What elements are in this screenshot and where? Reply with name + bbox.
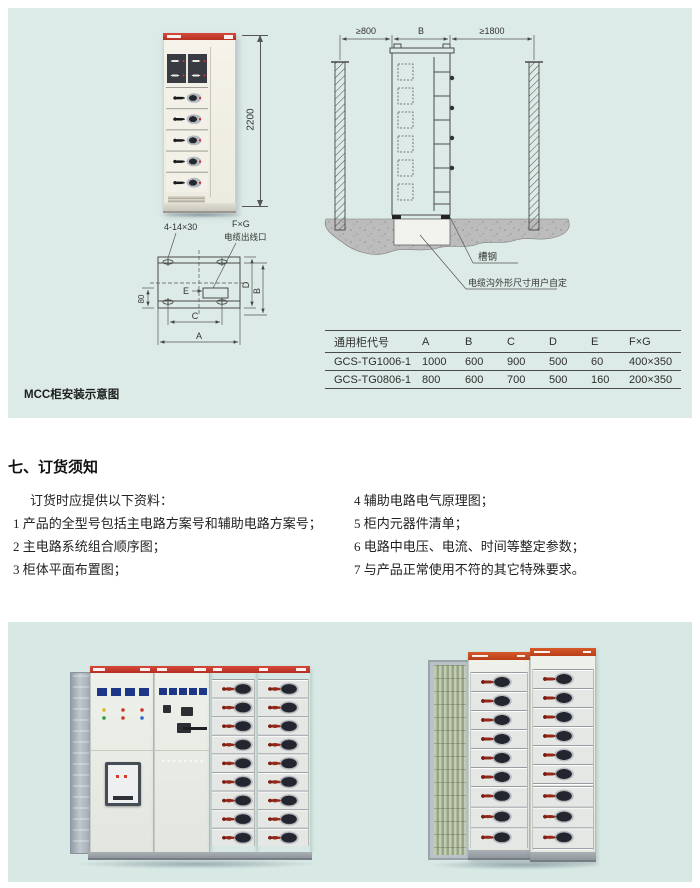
brand-mark (213, 668, 222, 671)
meter-cluster (97, 688, 149, 696)
drawer-cabinet (468, 652, 530, 860)
ordering-item: 5 柜内元器件清单； (354, 512, 692, 535)
installation-diagram-panel: 2200 (8, 8, 692, 418)
plinth (468, 850, 530, 860)
ordering-list-right: 4 辅助电路电气原理图； 5 柜内元器件清单； 6 电路中电压、电流、时间等整定… (354, 489, 692, 581)
dim-80-label: 80 (137, 294, 146, 303)
walls (331, 62, 543, 230)
table-row: GCS-TG0806-1 800 600 700 500 160 200×350 (325, 371, 681, 389)
cabinet-body (163, 40, 236, 205)
ordering-item: 2 主电路系统组合顺序图； (13, 535, 351, 558)
cabinet-top-band (90, 666, 154, 673)
table-header-cell: F×G (627, 331, 681, 353)
table-cell: 500 (547, 371, 589, 389)
frame-slats (73, 675, 89, 851)
metering-cabinet (90, 666, 154, 852)
ordering-item: 1 产品的全型号包括主电路方案号和辅助电路方案号； (13, 512, 351, 535)
table-cell: GCS-TG1006-1 (325, 353, 420, 371)
catalog-page: 2200 (0, 0, 700, 888)
open-frame-side (428, 660, 472, 860)
cabinet-front-photo (163, 33, 236, 213)
indicator-lights (99, 706, 147, 722)
cabinet-top-band (210, 666, 256, 673)
cabinet-face (154, 673, 210, 852)
ordering-item: 6 电路中电压、电流、时间等整定参数； (354, 535, 692, 558)
cabinet-top-band (154, 666, 210, 673)
drawer-stack (166, 87, 208, 193)
arrow-up-icon (257, 35, 263, 42)
table-cell: 900 (505, 353, 547, 371)
display-screen (108, 765, 138, 803)
cabinet-top-band (468, 652, 530, 660)
table-header-cell: D (547, 331, 589, 353)
section-view-drawing: ≥800 B ≥1800 槽钢 电缆沟外形尺寸用户自定 (320, 22, 575, 314)
table-header-cell: 通用柜代号 (325, 331, 420, 353)
channel-steel-feet (392, 215, 450, 219)
model-mark (517, 655, 525, 658)
cable-outlet-rect (203, 288, 228, 298)
height-dim-label: 2200 (246, 103, 257, 137)
table-cell: 600 (463, 371, 505, 389)
photo-shadow (72, 859, 320, 869)
cabinet-top-band (163, 33, 236, 40)
right-clearance-label: ≥1800 (480, 26, 505, 36)
drawer-stack-upper (532, 669, 594, 786)
table-header-cell: C (505, 331, 547, 353)
cabinet-top-band (530, 648, 596, 656)
table-cell: 500 (547, 353, 589, 371)
brand-mark (167, 35, 181, 38)
section-heading: 七、订货须知 (8, 456, 98, 477)
dim-c-label: C (192, 311, 199, 321)
height-dim-line (260, 35, 261, 207)
drawer-stack-upper (470, 672, 528, 786)
drawer-stack-lower (470, 786, 528, 848)
dimension-table: 通用柜代号 A B C D E F×G GCS-TG1006-1 1000 60… (325, 330, 681, 389)
brand-mark (157, 668, 167, 671)
button-row (161, 759, 205, 763)
control-cabinet (154, 666, 210, 852)
cable-outlet-label: 电缆出线口 (224, 232, 267, 242)
ordering-item: 7 与产品正常使用不符的其它特殊要求。 (354, 558, 692, 581)
dim-ext-top (242, 35, 268, 36)
channel-steel-label: 槽钢 (478, 251, 497, 263)
switch-handle (183, 727, 207, 730)
drawer-stack-lower (532, 786, 594, 850)
model-mark (224, 35, 233, 39)
drawer-stack (257, 679, 309, 846)
table-cell: 700 (505, 371, 547, 389)
brand-mark (534, 651, 550, 654)
table-header-row: 通用柜代号 A B C D E F×G (325, 331, 681, 353)
dim-d-label: D (241, 281, 251, 288)
dim-a-label: A (196, 331, 202, 341)
table-cell: 160 (589, 371, 627, 389)
table-header-cell: E (589, 331, 627, 353)
side-frame (70, 672, 92, 854)
dim-b-label: B (252, 288, 262, 294)
table-cell: GCS-TG0806-1 (325, 371, 420, 389)
product-photos-panel (8, 622, 692, 882)
dim-e-label: E (183, 286, 189, 296)
outlet-size-label: F×G (232, 219, 250, 229)
cabinet-width-label: B (418, 26, 424, 36)
display-panel (105, 762, 141, 806)
left-clearance-label: ≥800 (356, 26, 376, 36)
table-header-cell: A (420, 331, 463, 353)
door-seam (155, 750, 209, 751)
photo-shadow (428, 860, 604, 870)
brand-mark (259, 668, 268, 671)
meter-cluster (159, 688, 207, 695)
frame-rails (434, 665, 466, 855)
cabinet-top-band (256, 666, 310, 673)
brand-mark (472, 655, 488, 658)
cabinet-section (390, 44, 454, 215)
mounting-slots (163, 258, 227, 306)
drawer-cabinet (530, 648, 596, 862)
model-mark (583, 651, 591, 654)
meter-small (181, 707, 193, 716)
drawer-cabinet (256, 666, 310, 852)
switchgear-lineup-photo (70, 662, 320, 870)
table-cell: 800 (420, 371, 463, 389)
drawer-stack (211, 679, 255, 846)
table-row: GCS-TG1006-1 1000 600 900 500 60 400×350 (325, 353, 681, 371)
door-divider (210, 47, 211, 197)
drawer-cabinets-photo (428, 648, 608, 868)
plan-view-drawing: 4-14×30 F×G 电缆出线口 E D B 80 C A (120, 218, 300, 366)
selector-switch (163, 705, 171, 713)
trench-label: 电缆沟外形尺寸用户自定 (468, 277, 567, 288)
drawer-outlines (398, 64, 413, 200)
holes-label: 4-14×30 (164, 222, 197, 232)
table-cell: 1000 (420, 353, 463, 371)
table-cell: 600 (463, 353, 505, 371)
table-cell: 60 (589, 353, 627, 371)
drawer-cabinet (210, 666, 256, 852)
dim-ext-bottom (242, 206, 268, 207)
diagram-caption: MCC柜安装示意图 (24, 386, 119, 402)
model-mark (296, 668, 306, 671)
ordering-intro: 订货时应提供以下资料： (13, 489, 351, 512)
table-cell: 200×350 (627, 371, 681, 389)
table-header-cell: B (463, 331, 505, 353)
ordering-item: 3 柜体平面布置图； (13, 558, 351, 581)
door-seam (91, 750, 153, 751)
ordering-list-left: 订货时应提供以下资料： 1 产品的全型号包括主电路方案号和辅助电路方案号； 2 … (13, 489, 351, 581)
table-cell: 400×350 (627, 353, 681, 371)
ordering-item: 4 辅助电路电气原理图； (354, 489, 692, 512)
brand-mark (93, 668, 105, 671)
cabinet-face (90, 673, 154, 852)
cable-trench (394, 219, 450, 245)
feeder-module-grid (167, 54, 207, 83)
arrow-down-icon (257, 200, 263, 207)
model-mark (140, 668, 150, 671)
model-mark (194, 668, 206, 671)
